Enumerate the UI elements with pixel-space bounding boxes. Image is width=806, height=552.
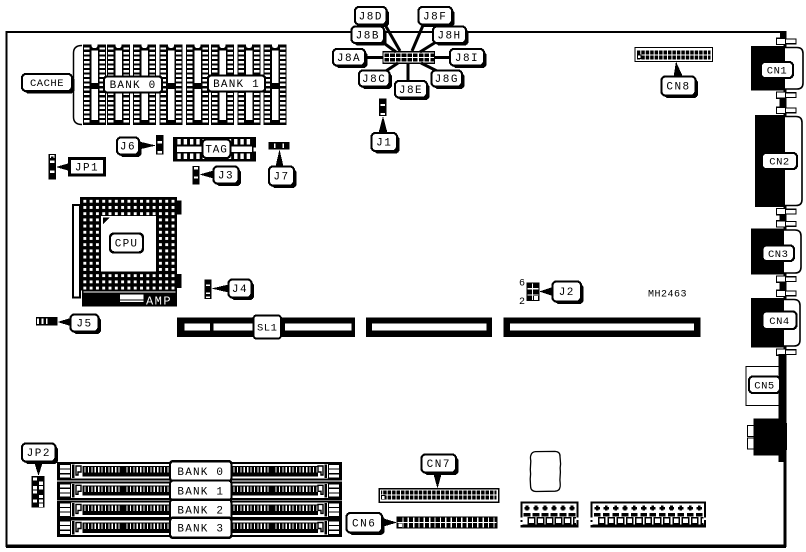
svg-text:2: 2: [519, 297, 525, 308]
svg-text:J8I: J8I: [455, 53, 479, 65]
svg-text:J8F: J8F: [423, 12, 447, 24]
svg-text:J8E: J8E: [399, 85, 423, 97]
svg-text:BANK 2: BANK 2: [177, 505, 224, 517]
svg-text:J8B: J8B: [356, 31, 380, 43]
svg-text:BANK 1: BANK 1: [177, 486, 224, 498]
svg-text:CN5: CN5: [754, 380, 774, 392]
svg-text:CACHE: CACHE: [30, 78, 64, 90]
svg-text:J8A: J8A: [337, 53, 361, 65]
svg-text:CN1: CN1: [767, 66, 787, 78]
svg-text:CPU: CPU: [115, 239, 138, 251]
svg-text:MH2463: MH2463: [648, 290, 687, 301]
svg-text:J2: J2: [559, 287, 575, 299]
svg-text:J7: J7: [273, 172, 289, 184]
svg-text:SL1: SL1: [257, 323, 277, 335]
svg-text:J8C: J8C: [362, 74, 386, 86]
svg-text:6: 6: [519, 279, 525, 290]
svg-text:J3: J3: [218, 171, 234, 183]
svg-text:BANK 0: BANK 0: [177, 467, 224, 479]
svg-text:AMP: AMP: [146, 295, 172, 309]
svg-text:J8G: J8G: [435, 74, 459, 86]
svg-text:J8D: J8D: [359, 12, 383, 24]
svg-text:J6: J6: [120, 142, 136, 154]
svg-text:CN3: CN3: [768, 249, 788, 261]
svg-text:CN2: CN2: [769, 157, 789, 169]
svg-text:J1: J1: [376, 138, 392, 150]
svg-text:J8H: J8H: [437, 31, 461, 43]
svg-text:CN8: CN8: [666, 82, 690, 94]
svg-text:BANK 0: BANK 0: [110, 80, 157, 92]
svg-text:CN4: CN4: [769, 316, 789, 328]
svg-text:TAG: TAG: [205, 145, 227, 157]
svg-text:CN7: CN7: [427, 459, 451, 471]
svg-text:JP2: JP2: [27, 448, 51, 460]
svg-text:CN6: CN6: [352, 519, 376, 531]
svg-text:J4: J4: [232, 284, 248, 296]
svg-text:BANK 1: BANK 1: [213, 79, 260, 91]
svg-text:BANK 3: BANK 3: [177, 524, 224, 536]
svg-text:J5: J5: [76, 319, 92, 331]
svg-text:JP1: JP1: [75, 163, 99, 175]
